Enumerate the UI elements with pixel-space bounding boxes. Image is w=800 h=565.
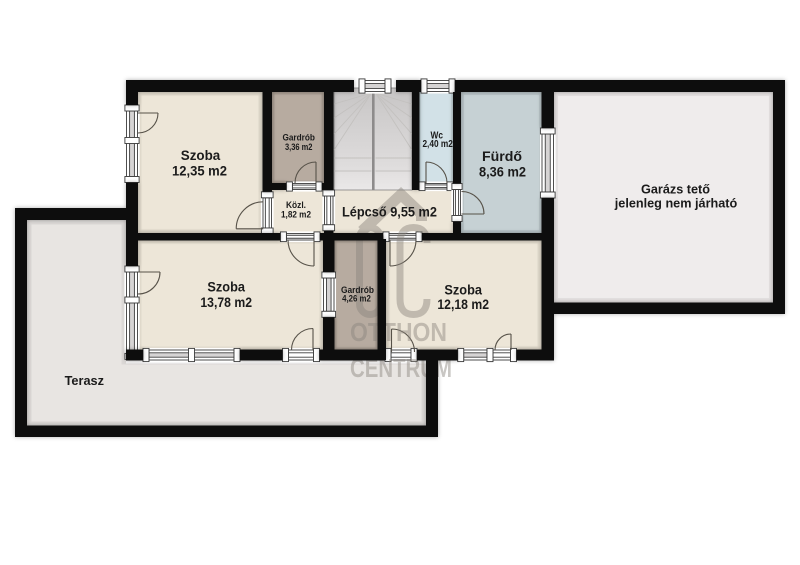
svg-text:1,82 m2: 1,82 m2 xyxy=(281,210,311,221)
svg-text:Fürdő: Fürdő xyxy=(482,148,522,164)
svg-text:Terasz: Terasz xyxy=(65,374,104,388)
svg-text:Garázs tető: Garázs tető xyxy=(641,183,710,197)
svg-text:jelenleg nem járható: jelenleg nem járható xyxy=(614,197,738,211)
svg-text:12,18 m2: 12,18 m2 xyxy=(437,297,489,312)
svg-text:Szoba: Szoba xyxy=(444,283,482,298)
svg-text:13,78 m2: 13,78 m2 xyxy=(200,295,252,310)
svg-text:4,26 m2: 4,26 m2 xyxy=(342,294,371,305)
svg-text:OTTHON: OTTHON xyxy=(350,317,447,347)
svg-text:Lépcső 9,55 m2: Lépcső 9,55 m2 xyxy=(342,204,437,220)
svg-text:Szoba: Szoba xyxy=(207,280,245,295)
svg-text:8,36 m2: 8,36 m2 xyxy=(479,164,526,180)
svg-text:2,40 m2: 2,40 m2 xyxy=(422,139,453,150)
svg-text:3,36 m2: 3,36 m2 xyxy=(285,142,313,153)
svg-text:Szoba: Szoba xyxy=(181,148,221,163)
svg-text:12,35 m2: 12,35 m2 xyxy=(172,164,227,179)
